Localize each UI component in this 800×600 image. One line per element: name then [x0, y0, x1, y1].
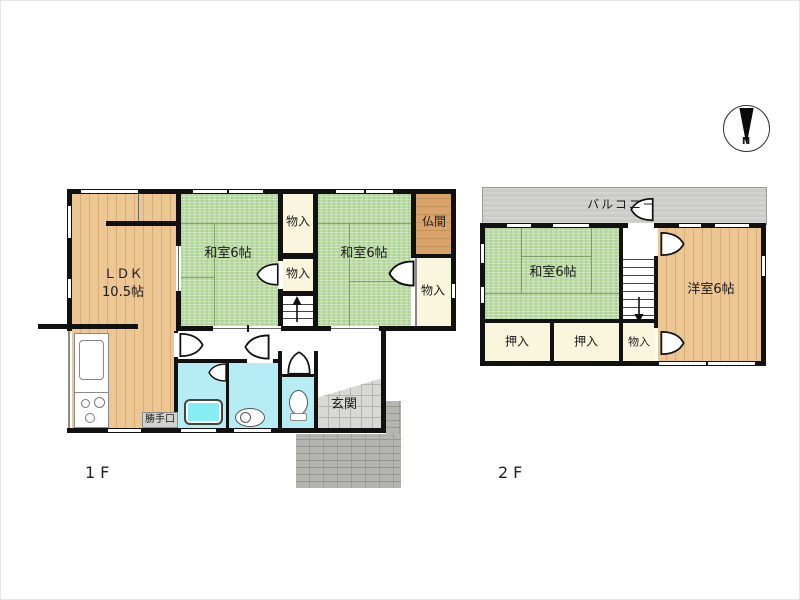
oshiire-b-label: 押入 — [574, 334, 598, 351]
washitsu-a-label: 和室6帖 — [204, 245, 251, 263]
compass-north-label: N — [742, 135, 750, 149]
tatami-line — [181, 223, 278, 224]
stair-tread — [623, 291, 655, 292]
monoire-side-label: 物入 — [421, 283, 445, 300]
wall-closet-divider1 — [278, 253, 318, 259]
window — [480, 287, 485, 303]
wall-stairs-left-2f — [619, 223, 623, 366]
tatami-line — [349, 223, 350, 326]
ldk-name: ＬＤＫ — [102, 266, 144, 284]
door-gap-balcony — [628, 223, 654, 228]
door-swing-youshitsu-top — [660, 231, 685, 257]
stairs-up-arrow — [290, 296, 304, 324]
katteguchi-label: 勝手口 — [142, 412, 178, 428]
door-tick — [247, 325, 249, 332]
window-washroom — [234, 428, 271, 433]
wall-closet-col-right — [313, 189, 318, 331]
monoire-mid-label: 物入 — [286, 266, 310, 283]
washitsu-2f-label: 和室6帖 — [529, 264, 576, 282]
wall-2f-right — [761, 223, 766, 366]
stairs-down-arrow — [632, 295, 646, 323]
window — [715, 223, 749, 228]
genkan-label: 玄関 — [331, 396, 357, 414]
wall-monoire-side-front — [415, 258, 417, 326]
door-swing-toilet — [287, 349, 311, 377]
sliding-door-ldk — [176, 246, 181, 291]
door-gap-ldk-hall — [174, 333, 178, 357]
window-tick — [227, 189, 229, 194]
window — [67, 206, 72, 238]
wall-toilet-right — [314, 351, 318, 429]
window — [761, 256, 766, 276]
monoire-2f-label: 物入 — [628, 334, 650, 349]
stair-tread — [623, 275, 655, 276]
wall-butsuma-left — [411, 189, 416, 258]
floor-plan: ＬＤＫ 10.5帖 和室6帖 和室6帖 仏間 物入 物入 物入 玄関 勝手口 1… — [0, 0, 800, 600]
tatami-line — [318, 223, 411, 224]
washitsu-b-label: 和室6帖 — [340, 245, 387, 263]
window-bath — [181, 428, 216, 433]
door-swing-washroom — [244, 334, 270, 360]
counter-divider — [74, 392, 109, 393]
door-swing-ldk — [179, 332, 204, 358]
window — [553, 223, 589, 228]
window — [480, 244, 485, 263]
toilet-base — [290, 413, 307, 421]
wall-1f-right — [451, 189, 456, 331]
window — [67, 279, 72, 298]
floor-2f-label: 2F — [498, 463, 527, 482]
tatami-line — [181, 277, 214, 278]
stair-tread — [623, 267, 655, 268]
ldk-label: ＬＤＫ 10.5帖 — [102, 266, 144, 302]
window — [507, 223, 531, 228]
window — [81, 189, 138, 194]
wall-oshiire-divider — [550, 319, 554, 366]
window — [451, 284, 456, 298]
toilet-bowl — [289, 390, 308, 415]
door-katteguchi — [108, 428, 141, 433]
door-swing-youshitsu-bottom — [660, 330, 685, 356]
sliding-door-washitsu-b — [331, 326, 379, 331]
tatami-line — [521, 256, 591, 257]
door-swing-monoire-mid — [256, 260, 279, 289]
washbasin-bowl — [240, 412, 251, 423]
tatami-line — [214, 223, 215, 326]
ldk-size: 10.5帖 — [102, 284, 144, 302]
wall-ldk-beam — [106, 221, 181, 226]
door-swing-bath — [208, 363, 227, 382]
tatami-line — [591, 228, 592, 293]
bathtub — [184, 399, 223, 425]
balcony-label: バルコニー — [587, 197, 657, 214]
door-swing-monoire-side — [388, 259, 415, 288]
stair-tread — [623, 283, 655, 284]
oshiire-a-label: 押入 — [505, 334, 529, 351]
porch-steps — [296, 434, 401, 488]
wall-toilet-left — [278, 351, 282, 429]
porch-strip — [386, 401, 401, 434]
tatami-line — [521, 228, 522, 293]
kitchen-nook-line — [138, 194, 139, 223]
wall-ldk-ledge — [38, 324, 138, 329]
wall-kitchen-left — [68, 331, 70, 431]
stair-tread — [623, 259, 655, 260]
wall-butsuma-bottom — [411, 254, 456, 258]
butsuma-label: 仏間 — [422, 214, 446, 231]
monoire-top-label: 物入 — [286, 214, 310, 231]
floor-1f-label: 1F — [85, 463, 114, 482]
stove-burner — [81, 399, 90, 408]
kitchen-sink — [79, 340, 104, 380]
youshitsu-label: 洋室6帖 — [687, 281, 734, 299]
window-tick — [706, 361, 708, 366]
stove-burner — [85, 413, 95, 423]
window-tick — [364, 189, 366, 194]
stove-burner — [94, 397, 105, 408]
tatami-line — [485, 293, 621, 294]
window — [679, 223, 701, 228]
wall-genkan-right — [381, 326, 386, 433]
